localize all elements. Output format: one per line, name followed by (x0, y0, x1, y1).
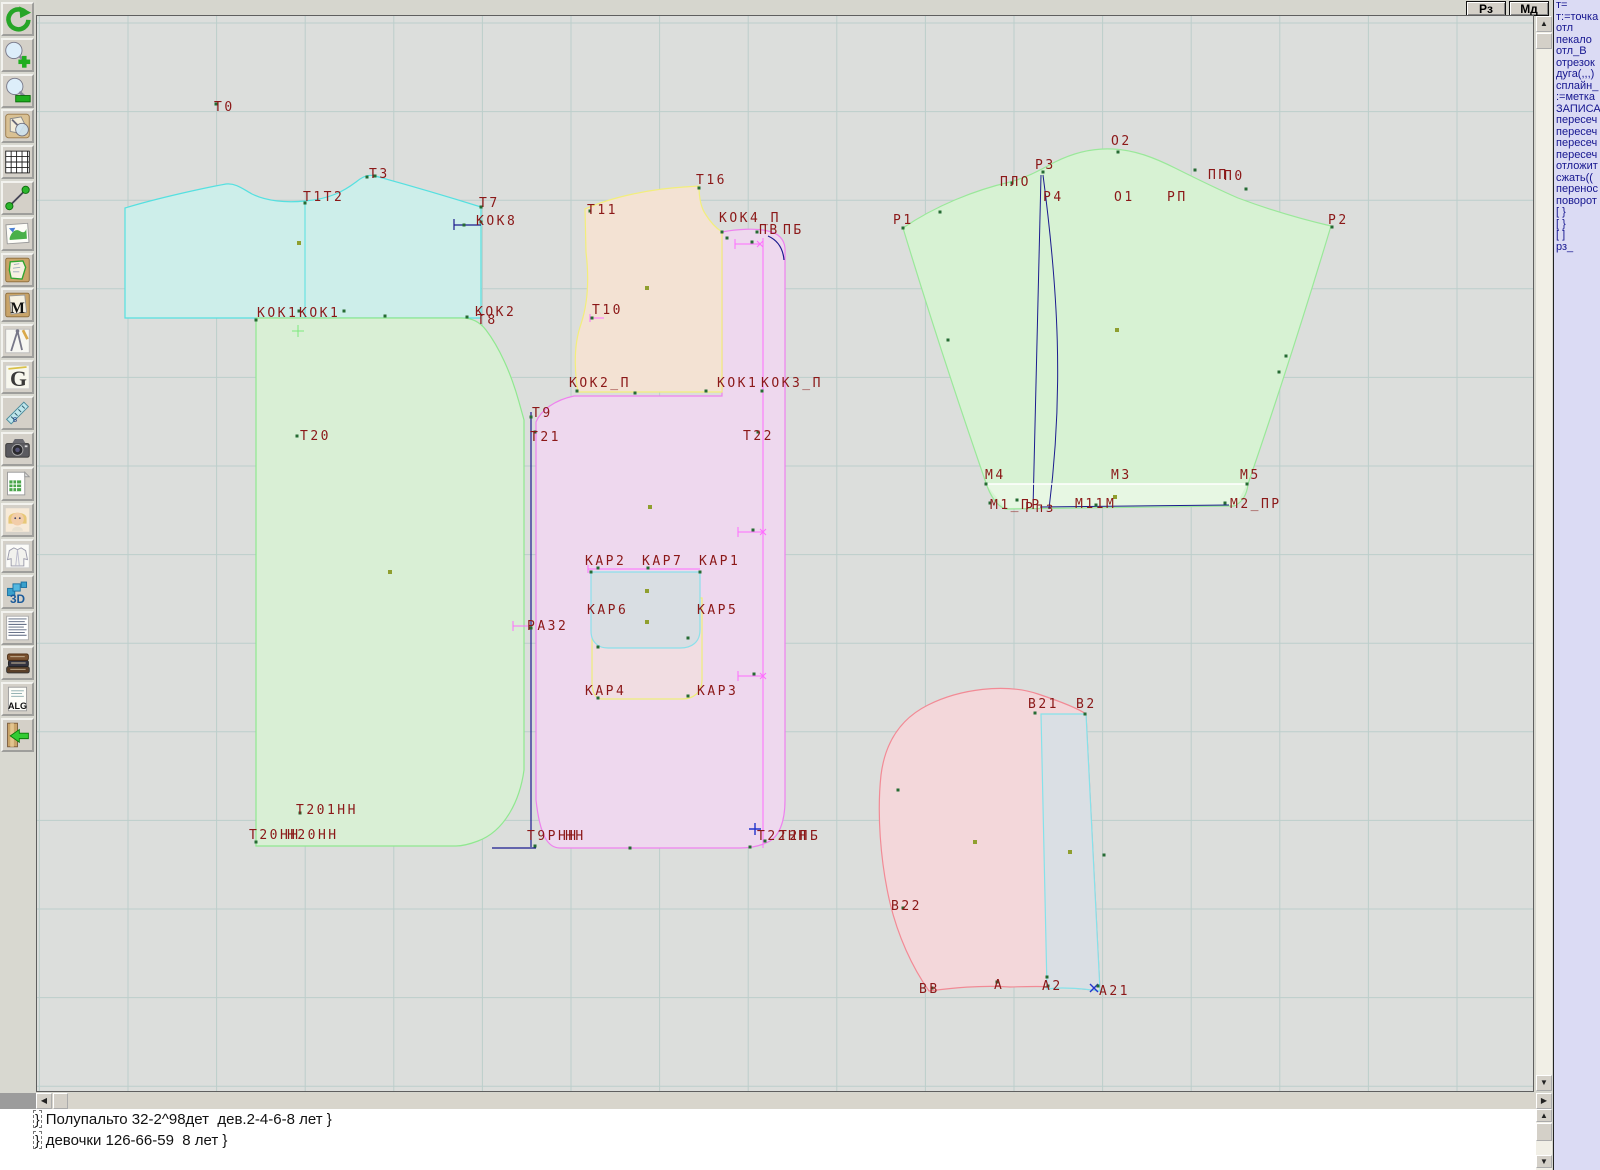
vscroll-thumb[interactable] (1536, 33, 1552, 49)
zoom-in-icon (3, 40, 32, 70)
point-label: А2 (1042, 979, 1063, 994)
command-line: отложит (1554, 161, 1600, 173)
text-list-icon (3, 613, 32, 643)
point-label: КОК1 (257, 306, 298, 321)
measure-icon (3, 183, 32, 213)
point-label: КАР7 (642, 554, 683, 569)
point-label: Т8 (477, 313, 498, 328)
toolbar-pattern-piece-button[interactable] (1, 253, 34, 287)
point-label: КОК3_П (761, 376, 823, 391)
point-label: А (994, 978, 1004, 993)
point-label: Н20НН (287, 828, 339, 843)
command-line: отл_В (1554, 46, 1600, 58)
undo-icon (3, 4, 32, 34)
svg-text:ALG: ALG (8, 701, 27, 711)
canvas-vertical-scrollbar[interactable]: ▲ ▼ (1536, 16, 1552, 1091)
point-label: Р2 (1328, 213, 1349, 228)
ruler-icon: 8 (3, 398, 32, 428)
console-scroll-thumb[interactable] (1536, 1123, 1552, 1141)
svg-text:G: G (10, 367, 27, 391)
library-icon (3, 648, 32, 678)
toolbar-garment-button[interactable] (1, 539, 34, 573)
text-cursor: } (33, 1110, 42, 1128)
point-label: ВВ (919, 982, 940, 997)
toolbar-pattern-m-button[interactable]: M (1, 288, 34, 322)
point-label: Т9 (532, 406, 553, 421)
rz-button[interactable]: Рз (1466, 1, 1506, 16)
point-label: М3 (1111, 468, 1132, 483)
point-label: Р4 (1043, 190, 1064, 205)
command-panel[interactable]: т=т:=точкаотлпекалоотл_Вотрезокдуга(,,,)… (1553, 0, 1600, 1170)
pattern-piece-icon (3, 255, 32, 285)
command-line: перенос (1554, 184, 1600, 196)
piece-back[interactable] (256, 318, 524, 846)
toolbar-ruler-button[interactable]: 8 (1, 396, 34, 430)
point-label: КАР3 (697, 684, 738, 699)
svg-text:8: 8 (13, 415, 17, 424)
point-label: О2 (1111, 134, 1132, 149)
toolbar-g-tool-button[interactable]: G (1, 360, 34, 394)
point-label: Т11 (587, 203, 618, 218)
command-line: дуга(,,,) (1554, 69, 1600, 81)
console-line: }Полупальто 32-2^98дет дев.2-4-6-8 лет } (0, 1109, 1536, 1130)
command-line: :=метка (1554, 92, 1600, 104)
point-label: КАР2 (585, 554, 626, 569)
drafting-icon (3, 326, 32, 356)
left-toolbar: MG83DALG (0, 0, 36, 1170)
svg-text:3D: 3D (10, 593, 25, 606)
point-label: КОК2_П (569, 376, 631, 391)
toolbar-portrait-button[interactable] (1, 503, 34, 537)
toolbar-undo-button[interactable] (1, 2, 34, 36)
exit-icon (3, 720, 32, 750)
point-label: КАР4 (585, 684, 626, 699)
point-label: РП (1167, 190, 1188, 205)
point-label: Т10 (592, 303, 623, 318)
hscroll-thumb[interactable] (53, 1093, 68, 1109)
app-window: MG83DALG Рз Мд Т0Т1Т2Т3Т7КОК8КОК1КОК1КОК… (0, 0, 1600, 1170)
pattern-canvas[interactable]: Т0Т1Т2Т3Т7КОК8КОК1КОК1КОК2Т8Т11Т16КОК4_П… (36, 15, 1534, 1092)
point-label: Т20 (300, 429, 331, 444)
scroll-up-icon[interactable]: ▲ (1536, 16, 1552, 32)
grid-icon (3, 147, 32, 177)
command-line: т= (1554, 0, 1600, 12)
scroll-right-icon[interactable]: ▶ (1536, 1093, 1552, 1109)
point-label: Р3 (1035, 158, 1056, 173)
status-console[interactable]: }Полупальто 32-2^98дет дев.2-4-6-8 лет }… (0, 1109, 1536, 1170)
toolbar-spreadsheet-button[interactable] (1, 467, 34, 501)
alg-icon: ALG (3, 684, 32, 714)
3d-icon: 3D (3, 577, 32, 607)
point-label: М11М (1075, 497, 1116, 512)
point-label: КАР6 (587, 603, 628, 618)
toolbar-alg-button[interactable]: ALG (1, 682, 34, 716)
point-label: Т201НН (296, 803, 358, 818)
scroll-down-icon[interactable]: ▼ (1536, 1155, 1552, 1168)
command-line: [ } (1554, 207, 1600, 219)
scroll-down-icon[interactable]: ▼ (1536, 1075, 1552, 1091)
svg-text:M: M (10, 301, 25, 318)
command-line: отл (1554, 23, 1600, 35)
point-label: ПЛО (1000, 175, 1031, 190)
point-label: Т0 (214, 100, 235, 115)
toolbar-measure-button[interactable] (1, 181, 34, 215)
toolbar-drafting-button[interactable] (1, 324, 34, 358)
toolbar-image-button[interactable] (1, 217, 34, 251)
command-line: пересеч (1554, 138, 1600, 150)
command-line: рз_ (1554, 242, 1600, 254)
toolbar-library-button[interactable] (1, 646, 34, 680)
toolbar-zoom-in-button[interactable] (1, 38, 34, 72)
scroll-up-icon[interactable]: ▲ (1536, 1109, 1552, 1122)
point-label: М2_ПР (1230, 497, 1282, 512)
zoom-out-icon (3, 76, 32, 106)
console-line: }девочки 126-66-59 8 лет } (0, 1130, 1536, 1151)
point-label: Т3 (369, 167, 390, 182)
portrait-icon (3, 505, 32, 535)
point-label: М4 (985, 468, 1006, 483)
point-label: НН (565, 829, 586, 844)
point-label: Т22 (743, 429, 774, 444)
point-label: О1 (1114, 190, 1135, 205)
point-label: ПВ (759, 223, 780, 238)
point-label: КАР5 (697, 603, 738, 618)
point-label: Т7 (479, 196, 500, 211)
scroll-left-icon[interactable]: ◀ (36, 1093, 52, 1109)
point-label: Рпз (1025, 501, 1056, 516)
point-label: Т2ПБ (779, 829, 820, 844)
point-label: КОК1 (717, 376, 758, 391)
preview-icon (3, 111, 32, 141)
point-label: П0 (1224, 169, 1245, 184)
toolbar-preview-button[interactable] (1, 109, 34, 143)
point-label: КОК1 (299, 306, 340, 321)
g-tool-icon: G (3, 362, 32, 392)
point-label: Т21 (530, 430, 561, 445)
point-label: В21 (1028, 697, 1059, 712)
point-label: Т1Т2 (303, 190, 344, 205)
toolbar-exit-button[interactable] (1, 718, 34, 752)
point-label: КОК8 (476, 214, 517, 229)
point-label: РАЗ2 (527, 619, 568, 634)
canvas-horizontal-scrollbar[interactable]: ◀ ▶ (36, 1093, 1552, 1109)
toolbar-grid-button[interactable] (1, 145, 34, 179)
top-strip (36, 0, 1553, 15)
pattern-drawing: Т0Т1Т2Т3Т7КОК8КОК1КОК1КОК2Т8Т11Т16КОК4_П… (37, 16, 1533, 1091)
command-line: пересеч (1554, 115, 1600, 127)
spreadsheet-icon (3, 469, 32, 499)
pattern-m-icon: M (3, 290, 32, 320)
text-cursor: } (33, 1131, 42, 1149)
corner-block (0, 1093, 36, 1109)
point-label: Т16 (696, 173, 727, 188)
point-label: В22 (891, 899, 922, 914)
console-scrollbar[interactable]: ▲ ▼ (1536, 1109, 1552, 1170)
point-label: М5 (1240, 468, 1261, 483)
point-label: ПБ (783, 223, 804, 238)
toolbar-camera-button[interactable] (1, 432, 34, 466)
garment-icon (3, 541, 32, 571)
command-line: [ ] (1554, 230, 1600, 242)
image-icon (3, 219, 32, 249)
point-label: Р1 (893, 213, 914, 228)
point-label: В2 (1076, 697, 1097, 712)
camera-icon (3, 434, 32, 464)
toolbar-zoom-out-button[interactable] (1, 74, 34, 108)
toolbar-text-list-button[interactable] (1, 611, 34, 645)
md-button[interactable]: Мд (1509, 1, 1549, 16)
point-label: КАР1 (699, 554, 740, 569)
point-label: А21 (1099, 984, 1130, 999)
toolbar-view-3d-button[interactable]: 3D (1, 575, 34, 609)
